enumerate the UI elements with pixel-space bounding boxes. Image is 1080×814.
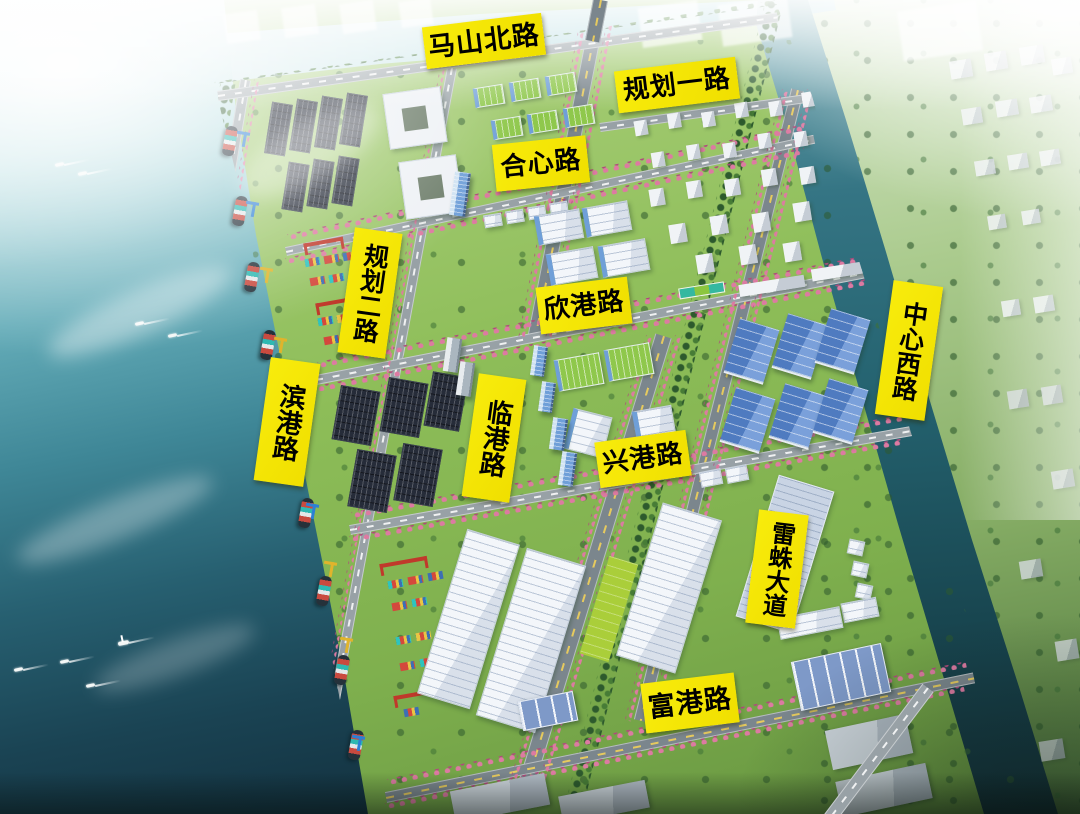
- small-building: [699, 468, 724, 488]
- container-stack: [415, 631, 431, 641]
- building: [1039, 738, 1066, 762]
- warehouse: [616, 502, 722, 673]
- residential-tower: [738, 244, 758, 265]
- warehouse: [534, 208, 585, 246]
- residential-tower: [799, 166, 816, 185]
- green-roof-warehouse: [554, 352, 605, 392]
- building: [1019, 558, 1044, 579]
- small-building: [851, 561, 870, 579]
- north-bank-block: [223, 10, 261, 44]
- container-stack: [407, 575, 423, 585]
- building: [1007, 153, 1029, 171]
- building: [949, 58, 974, 79]
- container-stack: [411, 597, 427, 607]
- solar-array: [347, 449, 396, 513]
- residential-tower: [686, 144, 701, 161]
- residential-tower: [695, 253, 715, 274]
- north-bank-block: [281, 4, 319, 38]
- residential-tower: [651, 151, 666, 168]
- small-building: [840, 597, 879, 624]
- north-bank-block: [398, 0, 433, 28]
- building: [1033, 295, 1055, 314]
- warehouse: [582, 200, 633, 238]
- residential-tower: [667, 112, 682, 129]
- container-stack: [317, 316, 333, 326]
- container-stack: [304, 257, 320, 267]
- container-stack: [391, 601, 407, 611]
- building: [1041, 385, 1064, 406]
- sports-court: [678, 281, 725, 299]
- container-stack: [323, 335, 339, 345]
- container-stack: [427, 571, 443, 581]
- solar-array: [306, 159, 334, 210]
- residential-tower: [792, 201, 812, 222]
- residential-tower: [722, 142, 737, 159]
- light-industrial-building: [563, 104, 596, 128]
- clubhouse: [738, 275, 805, 297]
- container-stack: [399, 661, 415, 671]
- solar-array: [332, 385, 381, 446]
- solar-array: [281, 162, 309, 213]
- solar-array: [331, 156, 359, 207]
- container-stack: [323, 254, 339, 264]
- blue-warehouse: [769, 383, 825, 449]
- residential-tower: [751, 212, 771, 233]
- north-bank-block: [339, 0, 377, 34]
- building: [1001, 299, 1021, 318]
- small-building: [505, 209, 525, 225]
- solar-array: [339, 93, 368, 148]
- gantry-crane: [379, 556, 428, 576]
- clubhouse: [811, 261, 864, 281]
- building: [995, 98, 1019, 117]
- solar-array: [393, 443, 442, 507]
- building: [1007, 389, 1030, 410]
- aerial-masterplan-map: 马山北路 规划一路 合心路 欣港路 规划二路 滨港路 临港路 中心西路 兴港路 …: [0, 0, 1080, 814]
- residential-tower: [724, 178, 741, 197]
- building: [1055, 638, 1080, 661]
- residential-tower: [633, 119, 648, 136]
- residential-tower: [686, 180, 703, 199]
- light-industrial-building: [509, 78, 542, 102]
- office-tower: [538, 381, 556, 413]
- blue-warehouse: [720, 387, 776, 453]
- building: [987, 214, 1007, 231]
- residential-tower: [793, 131, 808, 148]
- building: [1029, 94, 1053, 113]
- building: [1019, 44, 1046, 66]
- light-industrial-building: [527, 110, 560, 134]
- light-industrial-building: [473, 84, 506, 108]
- office-tower: [558, 451, 578, 487]
- building: [974, 159, 996, 177]
- courtyard-office: [382, 86, 447, 150]
- residential-tower: [734, 102, 749, 119]
- container-stack: [309, 276, 325, 286]
- residential-tower: [701, 111, 716, 128]
- small-building: [725, 464, 750, 484]
- residential-tower: [709, 214, 729, 235]
- small-building: [483, 213, 503, 229]
- light-industrial-building: [545, 72, 578, 96]
- office-tower: [456, 361, 476, 397]
- container-stack: [403, 707, 419, 717]
- residential-tower: [782, 241, 802, 262]
- residential-tower: [668, 223, 688, 244]
- building: [1039, 149, 1061, 167]
- road-label-hexin: 合心路: [492, 135, 590, 192]
- light-industrial-building: [491, 116, 524, 140]
- residential-tower: [768, 100, 783, 117]
- residential-tower: [648, 188, 665, 207]
- container-stack: [328, 273, 344, 283]
- container-stack: [395, 635, 411, 645]
- container-stack: [387, 579, 403, 589]
- gantry-crane: [303, 237, 344, 256]
- office-tower: [530, 345, 548, 377]
- residential-tower: [761, 168, 778, 187]
- warehouse: [558, 780, 650, 814]
- small-building: [847, 539, 866, 557]
- building: [1021, 209, 1041, 226]
- blue-warehouse: [815, 308, 871, 374]
- building: [1051, 57, 1073, 76]
- building: [984, 50, 1009, 71]
- building: [1051, 468, 1076, 489]
- solar-array: [380, 377, 429, 438]
- building: [961, 107, 983, 126]
- residential-tower: [757, 132, 772, 149]
